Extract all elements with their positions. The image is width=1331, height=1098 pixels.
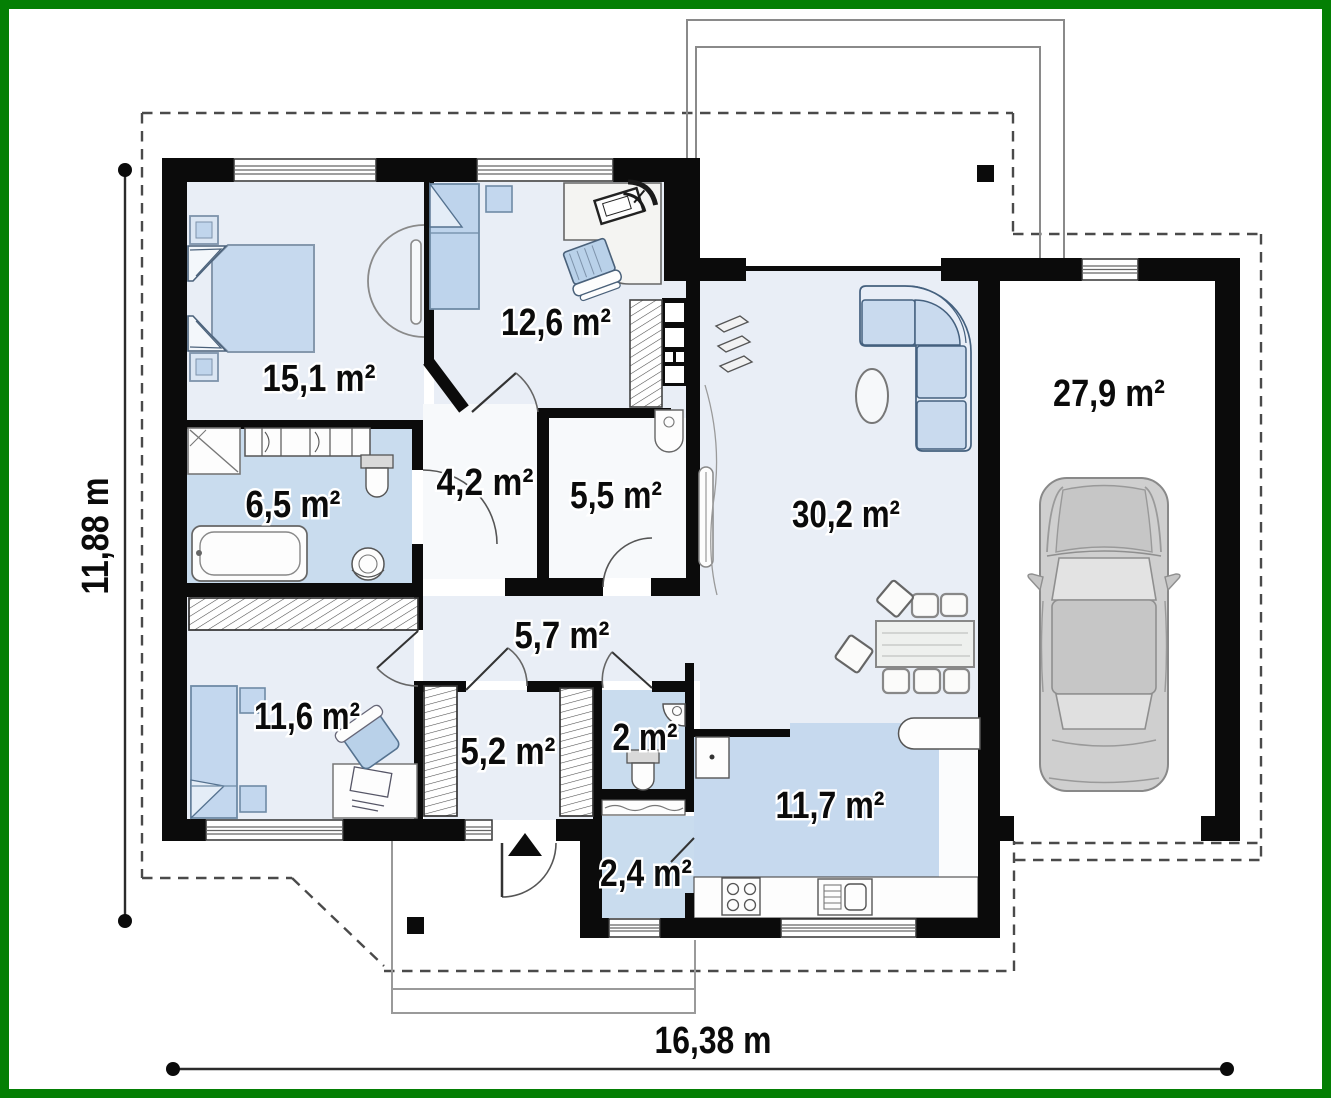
svg-text:2 m²: 2 m² <box>613 717 678 759</box>
svg-text:11,88 m: 11,88 m <box>75 478 117 595</box>
svg-text:4,2 m²: 4,2 m² <box>437 462 534 504</box>
svg-text:30,2 m²: 30,2 m² <box>792 494 900 536</box>
svg-text:5,7 m²: 5,7 m² <box>515 615 610 657</box>
svg-text:16,38 m: 16,38 m <box>655 1020 772 1062</box>
svg-text:12,6 m²: 12,6 m² <box>501 302 611 344</box>
svg-text:2,4 m²: 2,4 m² <box>600 853 692 895</box>
svg-text:11,7 m²: 11,7 m² <box>776 785 885 827</box>
svg-text:5,2 m²: 5,2 m² <box>461 731 556 773</box>
svg-text:5,5 m²: 5,5 m² <box>570 475 662 517</box>
svg-text:6,5 m²: 6,5 m² <box>246 484 341 526</box>
svg-text:11,6 m²: 11,6 m² <box>254 696 360 738</box>
svg-text:27,9 m²: 27,9 m² <box>1053 373 1165 415</box>
svg-text:15,1 m²: 15,1 m² <box>263 358 376 400</box>
